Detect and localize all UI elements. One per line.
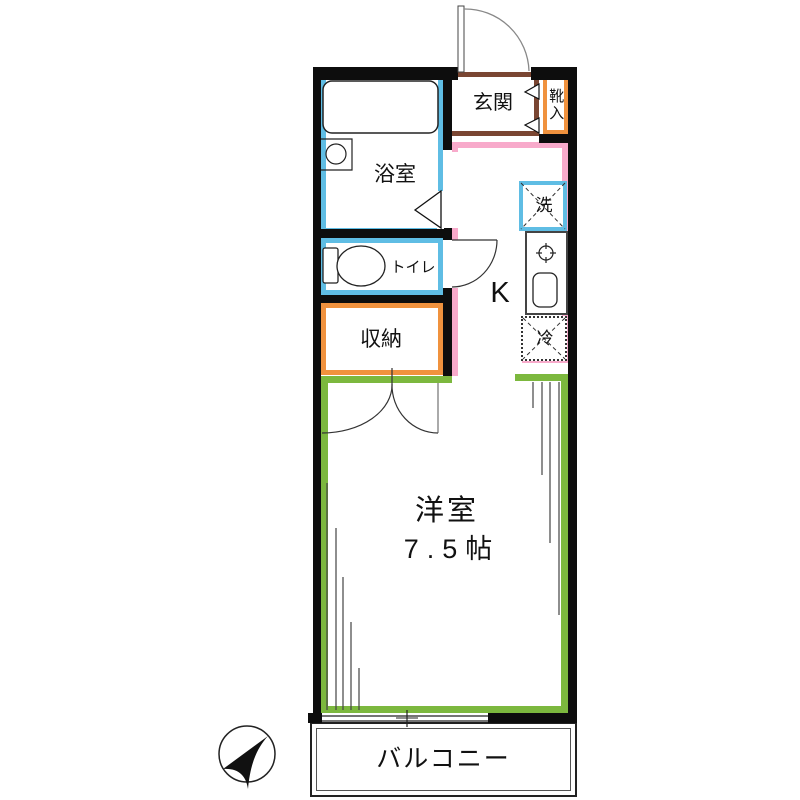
balcony-label: バルコニー (376, 745, 511, 774)
kitchen-border-left-3 (452, 288, 458, 376)
washer-label: 洗 (532, 196, 556, 216)
kitchen-counter (525, 231, 568, 315)
western-room-size-label: 7.5帖 (347, 534, 557, 565)
bathroom-label: 浴室 (350, 163, 440, 187)
floorplan-canvas: バルコニー 玄関 靴入 浴室 トイレ 収納 K 洗 冷 洋室 7.5帖 (0, 0, 800, 800)
balcony-inner-rail: バルコニー (316, 728, 571, 791)
room-bathroom (321, 75, 443, 233)
room-border-bottom (321, 706, 568, 713)
fridge-label: 冷 (533, 329, 557, 349)
bathroom-door-opening (437, 191, 444, 229)
room-border-top-left (321, 376, 452, 383)
wall-right (568, 67, 577, 713)
storage-label: 収納 (336, 328, 426, 352)
toilet-label: トイレ (378, 259, 448, 276)
room-border-right (561, 374, 568, 713)
shoe-cabinet-label: 靴入 (547, 79, 564, 131)
wall-below-shoebox (539, 134, 577, 143)
western-room-label: 洋室 (347, 495, 547, 528)
entrance-door-swing (458, 6, 529, 72)
wall-top-left (313, 67, 458, 80)
genkan-label: 玄関 (452, 92, 534, 115)
balcony-area: バルコニー (310, 722, 577, 797)
wall-bath-toilet (313, 229, 452, 238)
room-border-left (321, 376, 328, 713)
wall-bottom-stub (308, 713, 322, 723)
wall-toilet-storage (313, 295, 452, 303)
wall-bottom-right (488, 713, 577, 723)
kitchen-border-left-2 (452, 228, 458, 240)
wall-left (313, 67, 321, 713)
kitchen-label: K (482, 277, 518, 310)
kitchen-border-left-1 (452, 142, 458, 152)
north-arrow-icon (219, 726, 275, 789)
wall-divider-upper (443, 67, 452, 150)
